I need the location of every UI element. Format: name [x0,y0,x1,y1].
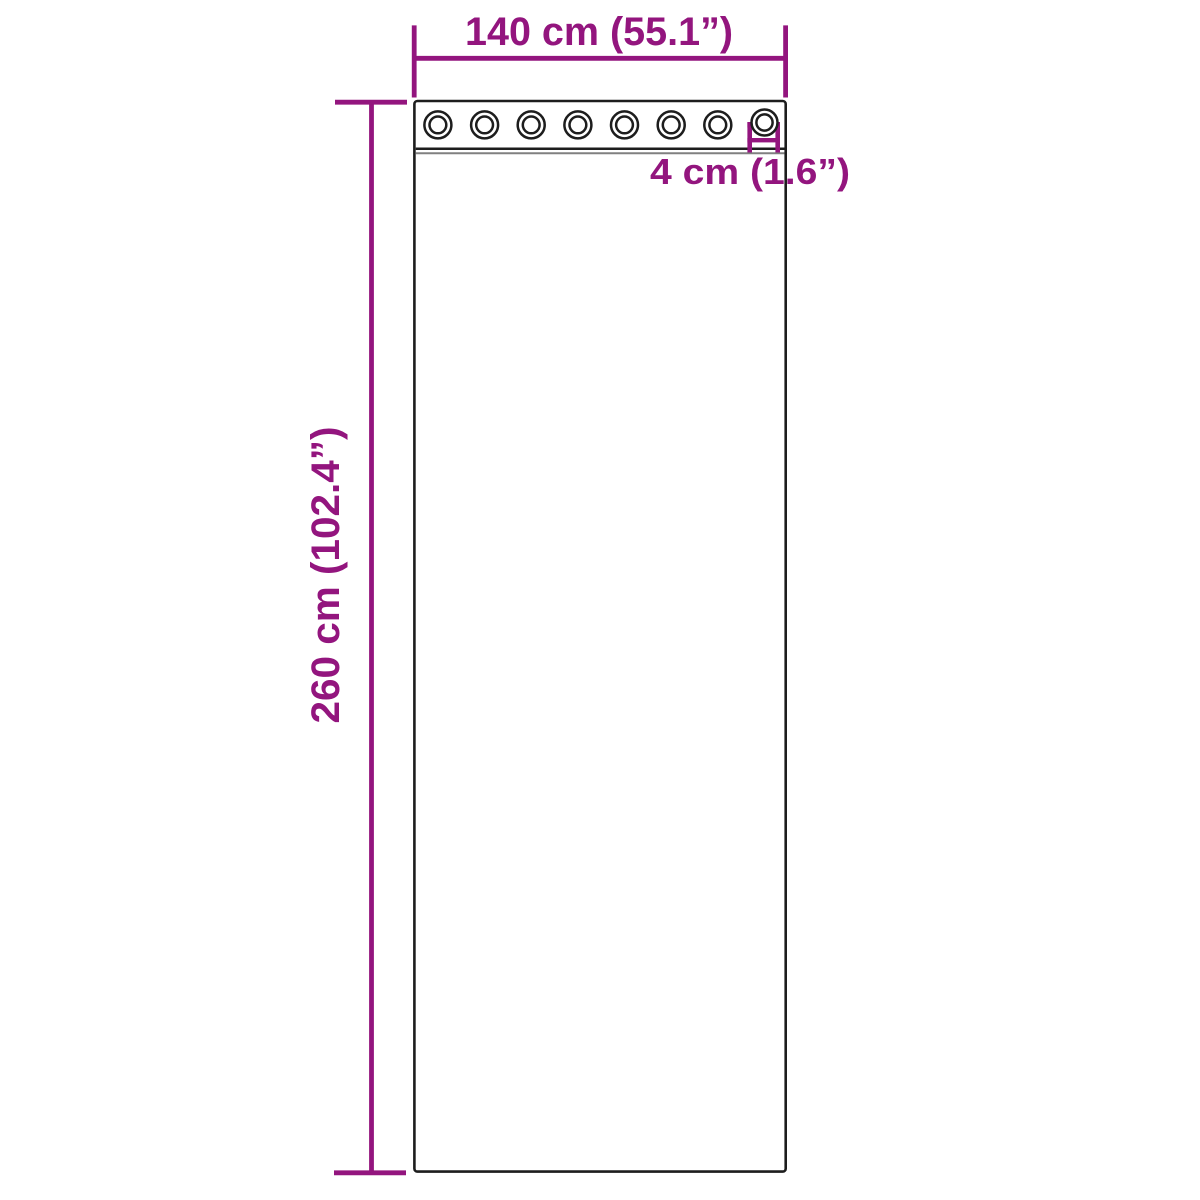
svg-text:4 cm (1.6”): 4 cm (1.6”) [650,151,850,192]
svg-text:260 cm (102.4”): 260 cm (102.4”) [304,427,348,724]
svg-text:140 cm (55.1”): 140 cm (55.1”) [465,10,733,54]
